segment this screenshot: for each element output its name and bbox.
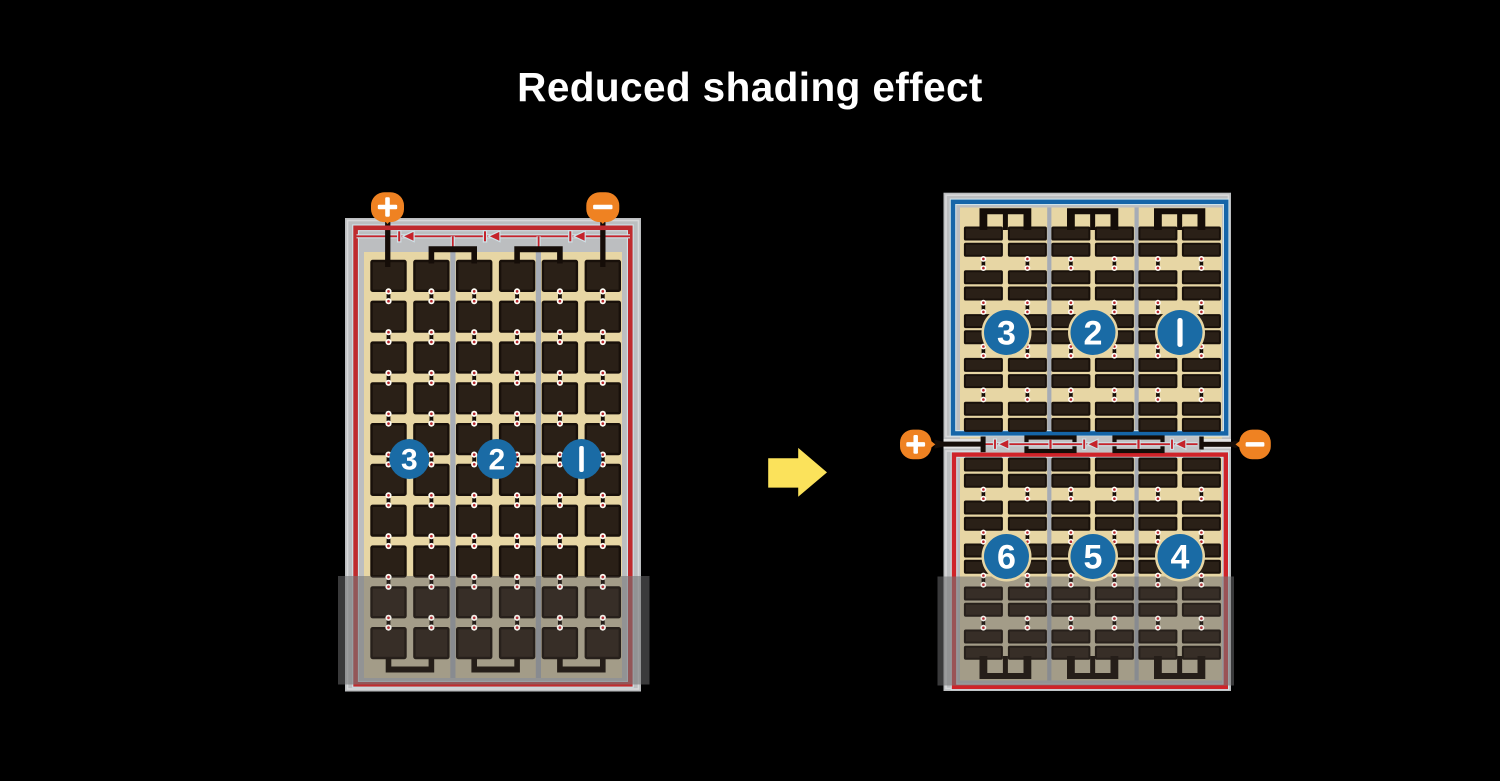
svg-text:5: 5 bbox=[1084, 539, 1103, 577]
svg-text:3: 3 bbox=[997, 315, 1016, 353]
svg-text:2: 2 bbox=[1084, 315, 1103, 353]
svg-text:Reduced shading effect: Reduced shading effect bbox=[517, 64, 983, 110]
svg-text:4: 4 bbox=[1171, 539, 1190, 577]
svg-text:3: 3 bbox=[401, 444, 418, 477]
svg-text:2: 2 bbox=[488, 444, 505, 477]
svg-text:6: 6 bbox=[997, 539, 1016, 577]
